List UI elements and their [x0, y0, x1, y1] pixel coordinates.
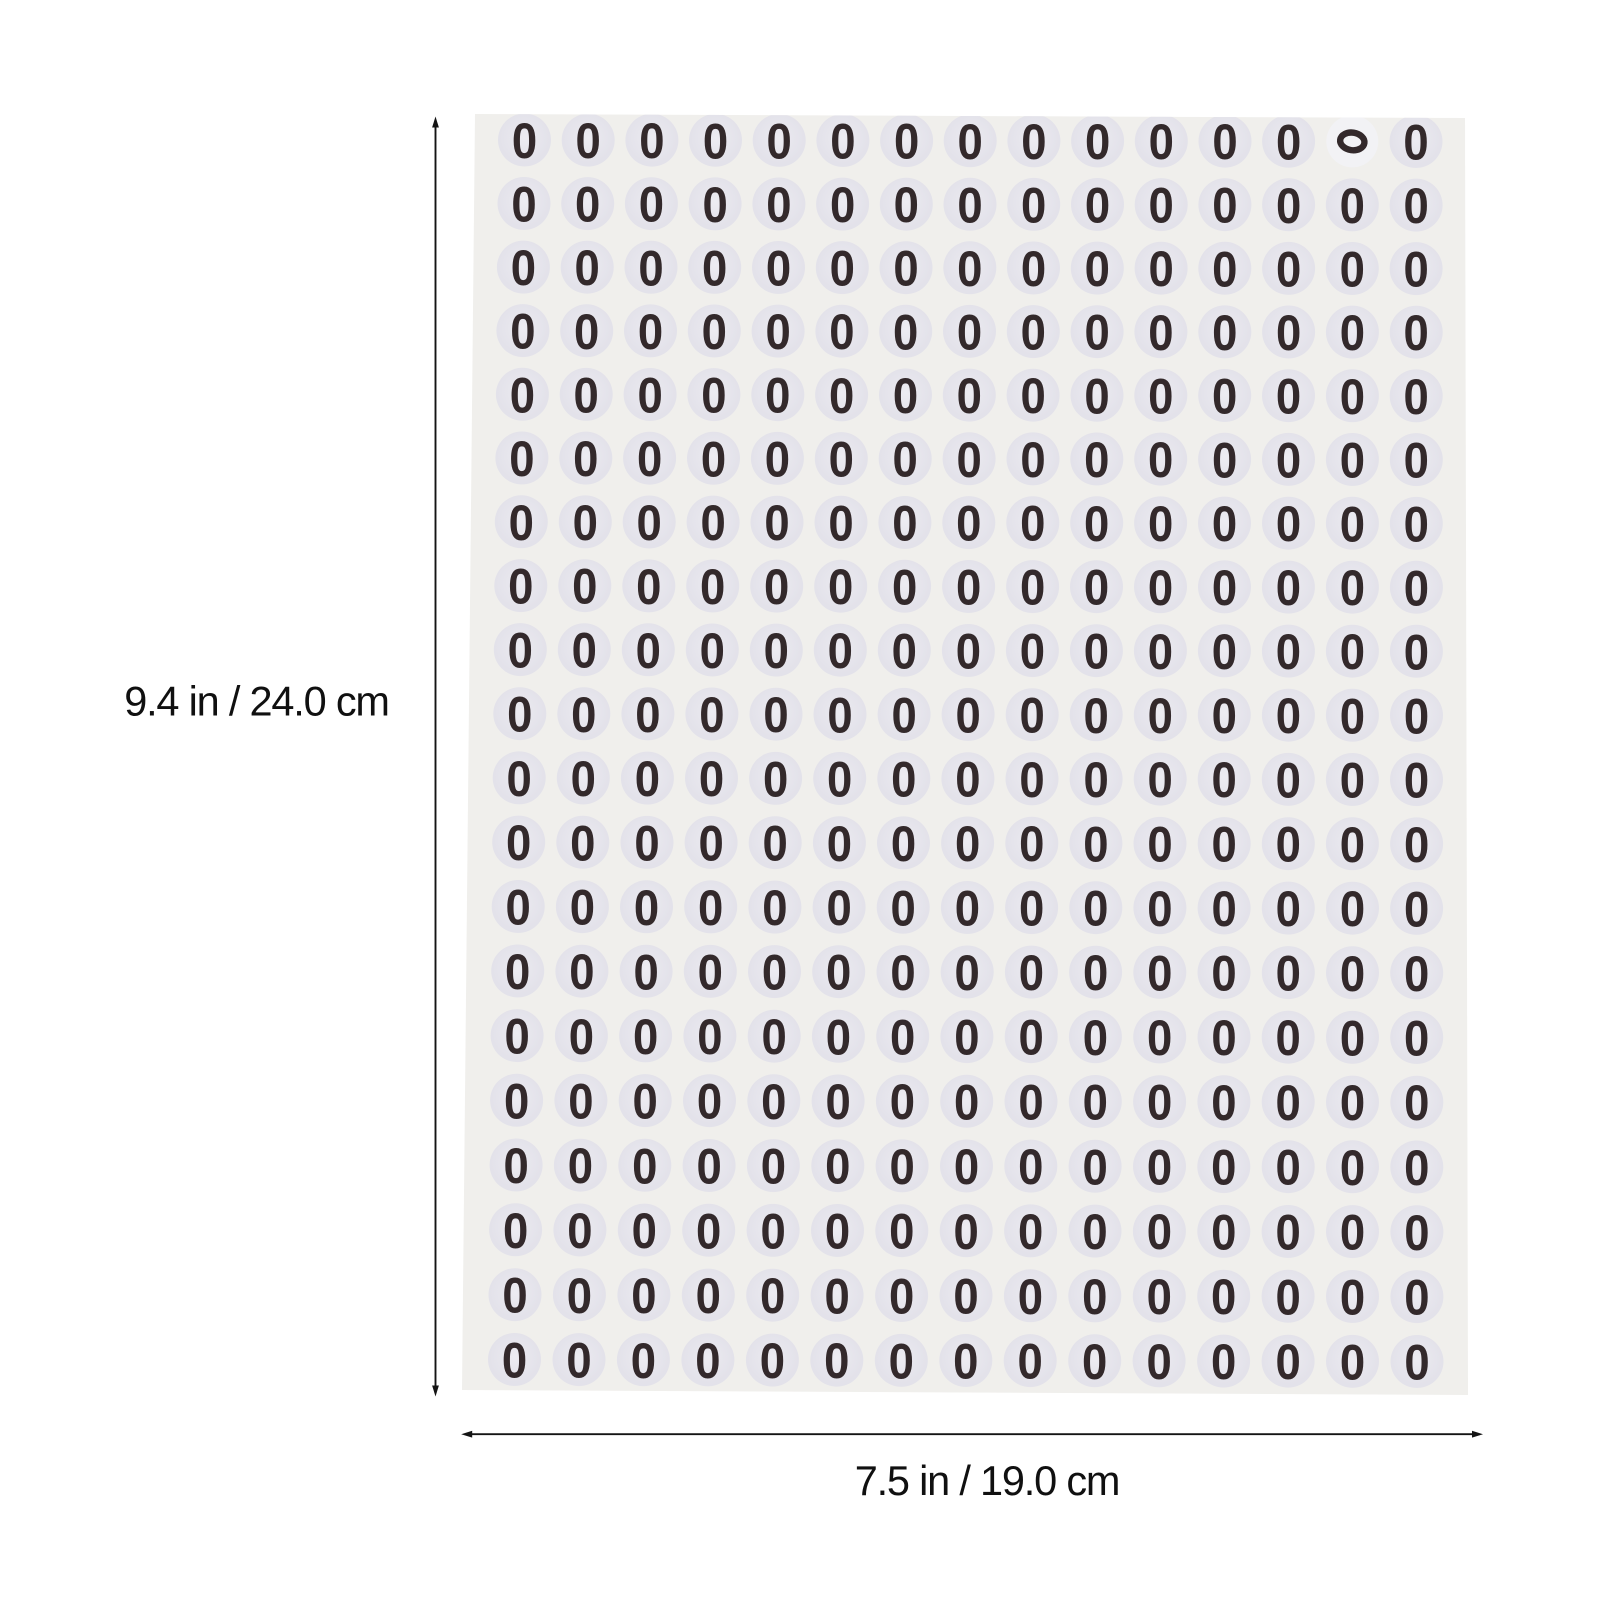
svg-text:7.5 in / 19.0 cm: 7.5 in / 19.0 cm: [855, 1457, 1120, 1504]
svg-text:9.4 in / 24.0 cm: 9.4 in / 24.0 cm: [124, 678, 389, 725]
